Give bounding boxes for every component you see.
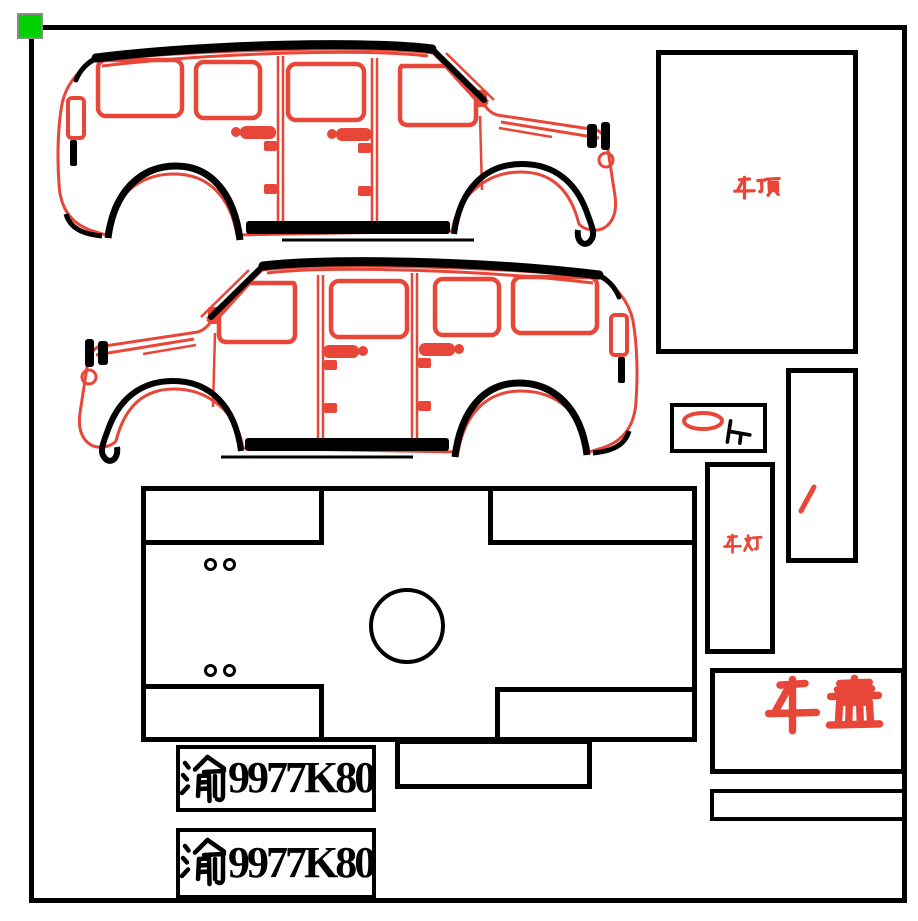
- panel-center-hole: [369, 588, 445, 664]
- panel-rivet-hole: [204, 558, 217, 571]
- lamp-panel-box: 车灯: [705, 462, 775, 654]
- plate-number: 9977K80: [228, 832, 373, 894]
- license-plate-2: 渝 9977K80: [176, 828, 376, 899]
- plate-prefix-char-yu: [180, 751, 230, 811]
- panel-notch-top-left: [141, 486, 324, 545]
- plate-prefix-char-yu: [180, 834, 230, 894]
- panel-sub-box: [395, 739, 592, 789]
- roof-panel-box: 车顶: [656, 50, 858, 354]
- up-marker-box: 上: [670, 403, 767, 453]
- panel-rivet-hole: [223, 558, 236, 571]
- license-plate-1: 渝 9977K80: [176, 745, 376, 812]
- panel-notch-bottom-right: [495, 687, 697, 742]
- hood-strip-box: [710, 789, 906, 821]
- panel-notch-top-right: [488, 486, 697, 545]
- panel-rivet-hole: [223, 664, 236, 677]
- slash-panel-box: /: [786, 368, 858, 563]
- green-corner-handle[interactable]: [17, 13, 43, 39]
- hood-panel-box: 车盖: [710, 668, 906, 774]
- layout-canvas: 车顶 上 车灯 / 车盖 渝 99: [0, 0, 918, 921]
- panel-notch-bottom-left: [141, 684, 324, 742]
- plate-number: 9977K80: [228, 749, 373, 807]
- panel-rivet-hole: [204, 664, 217, 677]
